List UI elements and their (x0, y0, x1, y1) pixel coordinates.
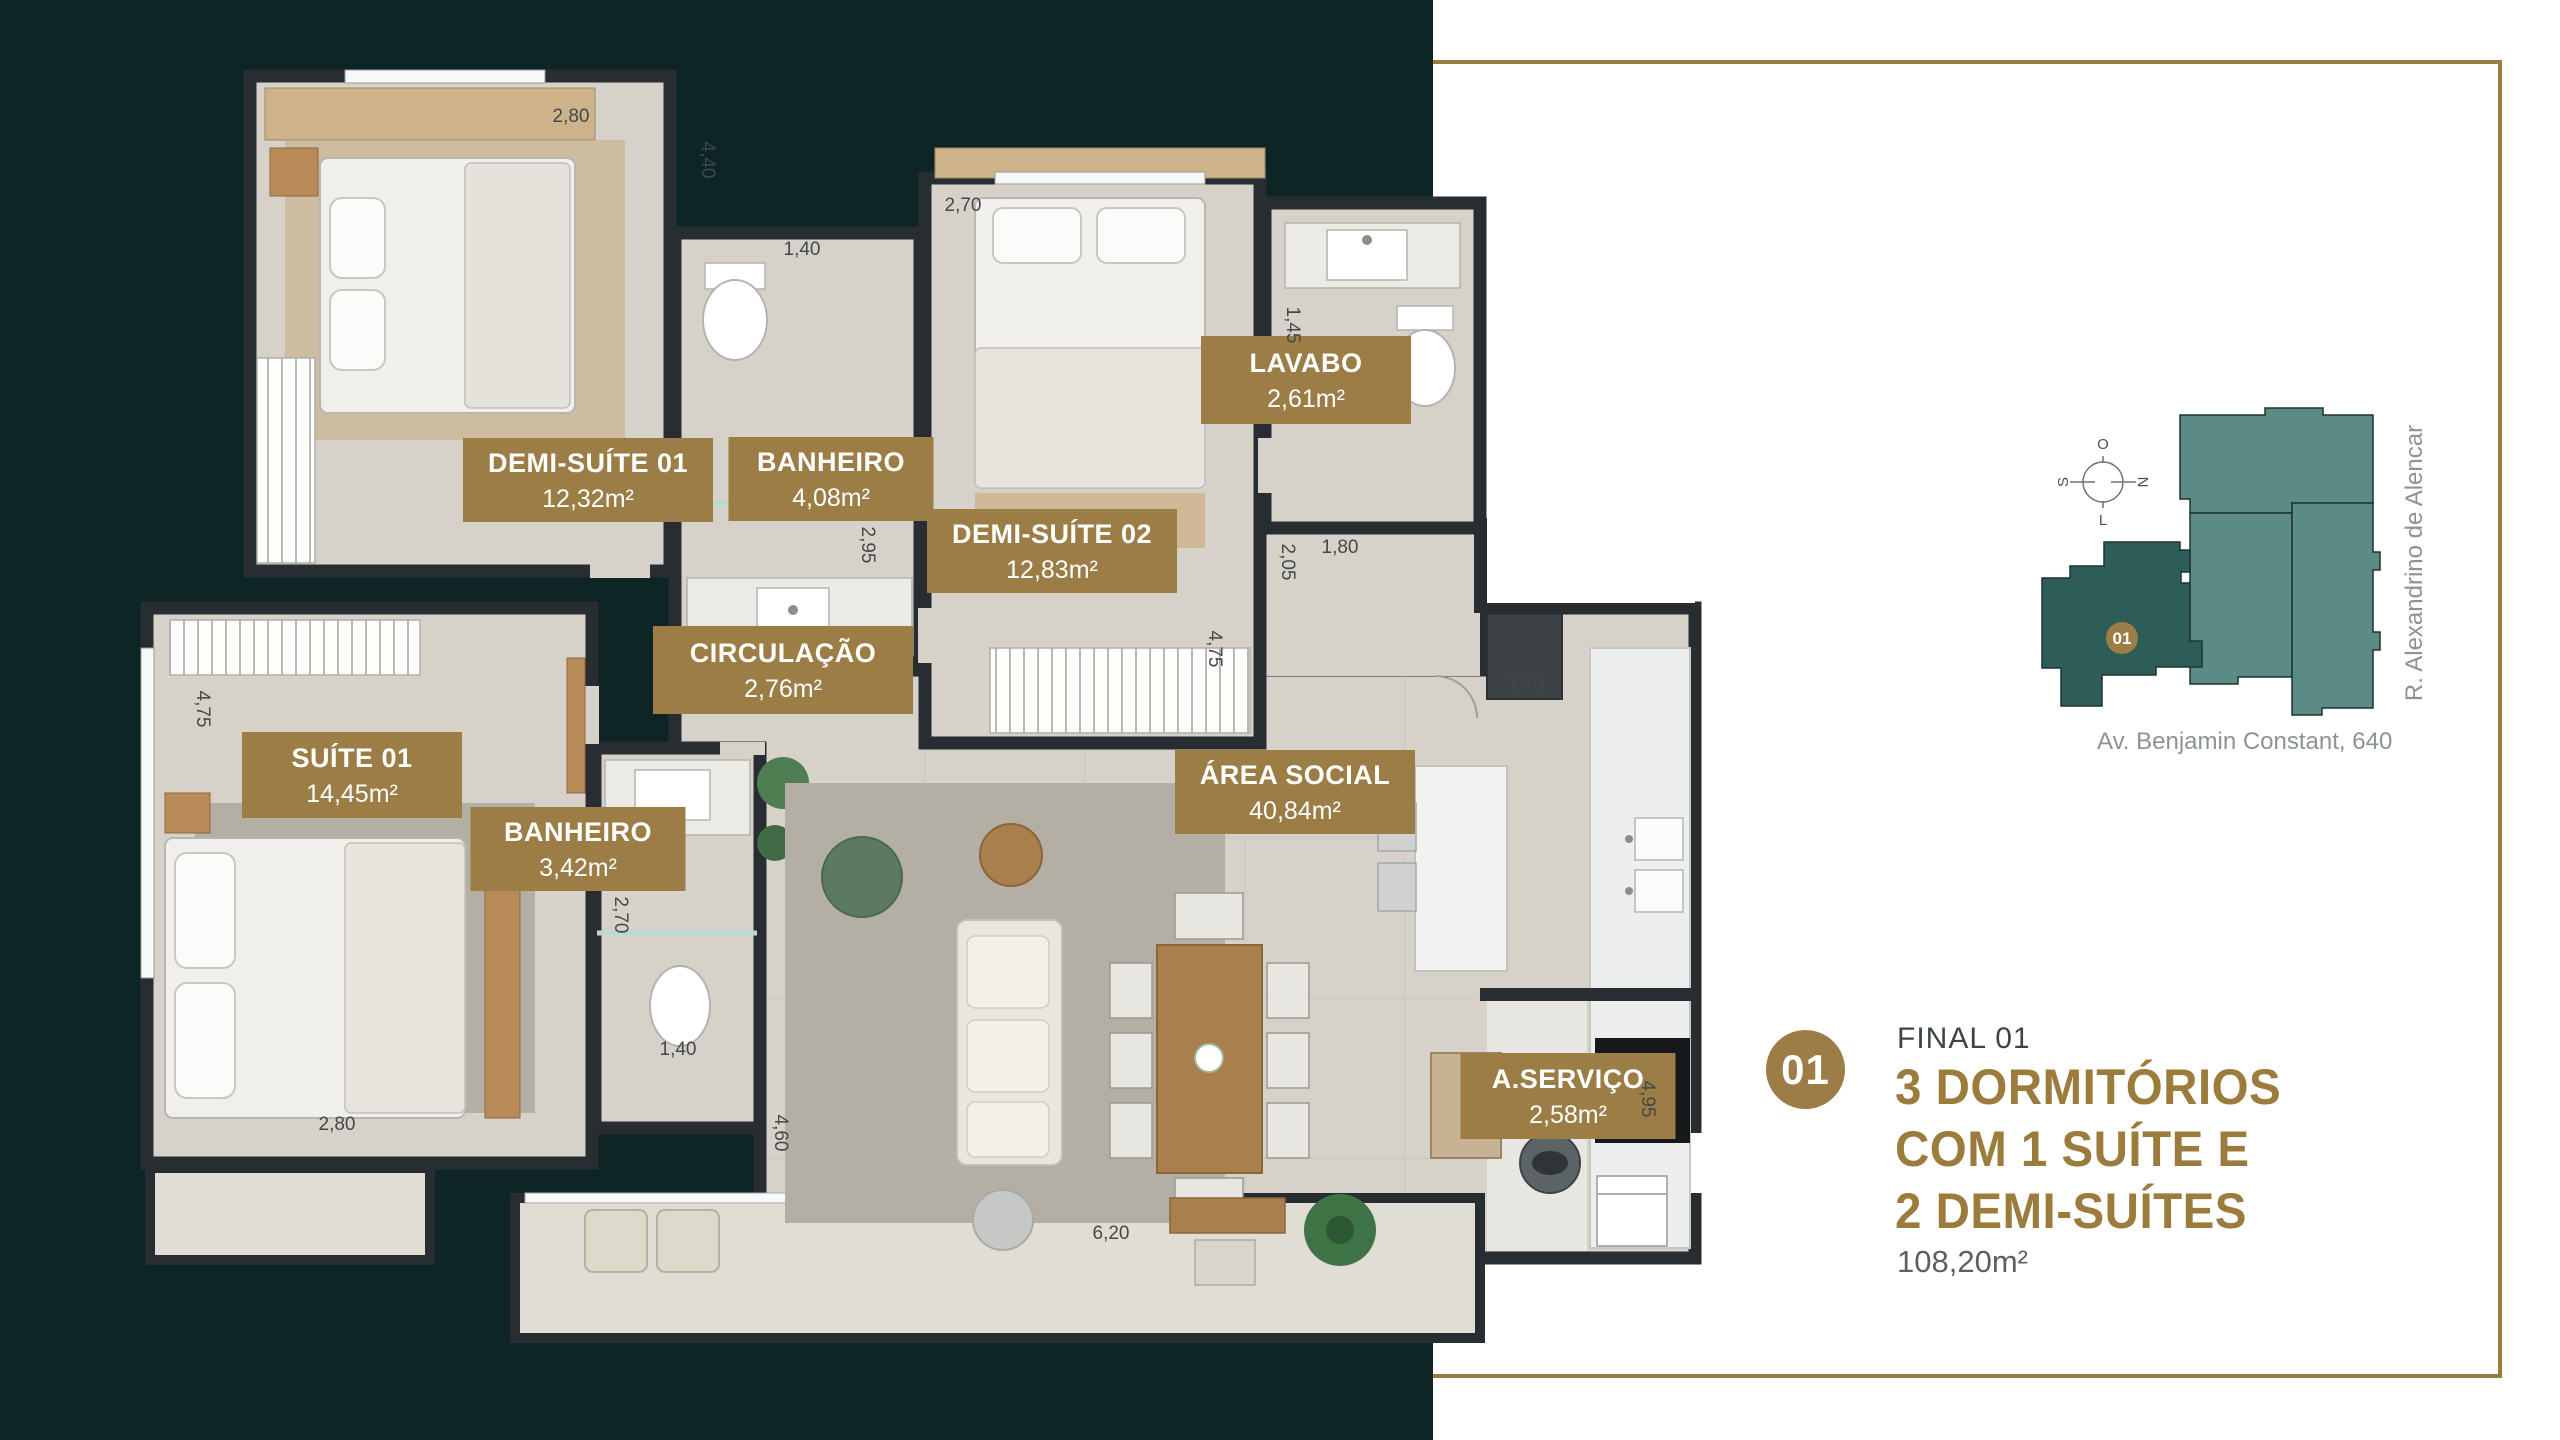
room-label: DEMI-SUÍTE 0112,32m² (463, 438, 713, 522)
dimension-label: 1,40 (660, 1039, 697, 1060)
svg-text:DEMI-SUÍTE 01: DEMI-SUÍTE 01 (488, 447, 688, 478)
svg-text:DEMI-SUÍTE 02: DEMI-SUÍTE 02 (952, 518, 1152, 549)
compass-n: N (2134, 477, 2151, 488)
dimension-label: 6,20 (1093, 1223, 1130, 1244)
dimension-label: 2,95 (857, 527, 878, 564)
svg-text:2,61m²: 2,61m² (1267, 385, 1345, 413)
svg-text:ÁREA SOCIAL: ÁREA SOCIAL (1200, 759, 1391, 790)
svg-text:2,58m²: 2,58m² (1529, 1101, 1607, 1129)
dimension-label: 4,95 (1637, 1081, 1658, 1118)
street-bottom-label: Av. Benjamin Constant, 640 (2097, 728, 2392, 755)
dimension-label: 2,05 (1277, 544, 1298, 581)
compass-o: O (2097, 436, 2109, 453)
svg-text:14,45m²: 14,45m² (306, 780, 398, 808)
room-label: BANHEIRO3,42m² (471, 807, 686, 891)
map-unit-marker-label: 01 (2113, 629, 2132, 648)
street-right-label: R. Alexandrino de Alencar (2401, 425, 2428, 701)
room-label: LAVABO2,61m² (1201, 336, 1411, 424)
svg-text:BANHEIRO: BANHEIRO (757, 447, 905, 477)
site-map: O N L S 01 R. Alexandrino de Alencar Av.… (2040, 405, 2470, 765)
svg-text:40,84m²: 40,84m² (1249, 797, 1341, 825)
dimension-label: 1,45 (1282, 307, 1303, 344)
building-core (1487, 233, 1695, 603)
svg-text:12,32m²: 12,32m² (542, 485, 634, 513)
room-label: DEMI-SUÍTE 0212,83m² (927, 509, 1177, 593)
svg-text:4,08m²: 4,08m² (792, 484, 870, 512)
svg-text:BANHEIRO: BANHEIRO (504, 817, 652, 847)
compass-l: L (2099, 512, 2107, 529)
headline-line-1: 3 DORMITÓRIOS (1895, 1056, 2281, 1118)
compass-icon: O N L S (2055, 436, 2151, 529)
dimension-label: 1,40 (784, 239, 821, 260)
headline-line-3: 2 DEMI-SUÍTES (1895, 1180, 2281, 1242)
dimension-label: 4,75 (192, 691, 213, 728)
dimension-label: 4,60 (770, 1115, 791, 1152)
svg-text:3,42m²: 3,42m² (539, 854, 617, 882)
unit-headline: 3 DORMITÓRIOS COM 1 SUÍTE E 2 DEMI-SUÍTE… (1895, 1056, 2281, 1242)
floor-plan: DEMI-SUÍTE 0112,32m²BANHEIRO4,08m²LAVABO… (135, 48, 1705, 1348)
svg-text:CIRCULAÇÃO: CIRCULAÇÃO (690, 637, 877, 668)
room-label: ÁREA SOCIAL40,84m² (1175, 750, 1415, 834)
room-label: SUÍTE 0114,45m² (242, 732, 462, 818)
svg-text:SUÍTE 01: SUÍTE 01 (291, 742, 412, 773)
suite-balcony (150, 1168, 430, 1260)
headline-line-2: COM 1 SUÍTE E (1895, 1118, 2281, 1180)
dimension-label: 2,70 (610, 897, 631, 934)
svg-text:2,76m²: 2,76m² (744, 675, 822, 703)
building-footprint (2042, 408, 2380, 715)
dimension-label: 3,70 (1507, 674, 1544, 695)
dimension-label: 4,40 (697, 142, 718, 179)
room-label: CIRCULAÇÃO2,76m² (653, 626, 913, 714)
total-area: 108,20m² (1897, 1244, 2028, 1280)
svg-text:A.SERVIÇO: A.SERVIÇO (1492, 1064, 1645, 1094)
svg-text:LAVABO: LAVABO (1250, 348, 1363, 378)
svg-text:12,83m²: 12,83m² (1006, 556, 1098, 584)
dimension-label: 1,80 (1322, 537, 1359, 558)
unit-number-badge: 01 (1766, 1030, 1845, 1109)
dimension-label: 4,75 (1204, 631, 1225, 668)
compass-s: S (2055, 477, 2072, 487)
dimension-label: 2,80 (319, 1114, 356, 1135)
dimension-label: 2,70 (945, 195, 982, 216)
dimension-label: 2,80 (553, 106, 590, 127)
room-label: BANHEIRO4,08m² (729, 437, 934, 521)
final-label: FINAL 01 (1897, 1022, 2031, 1056)
